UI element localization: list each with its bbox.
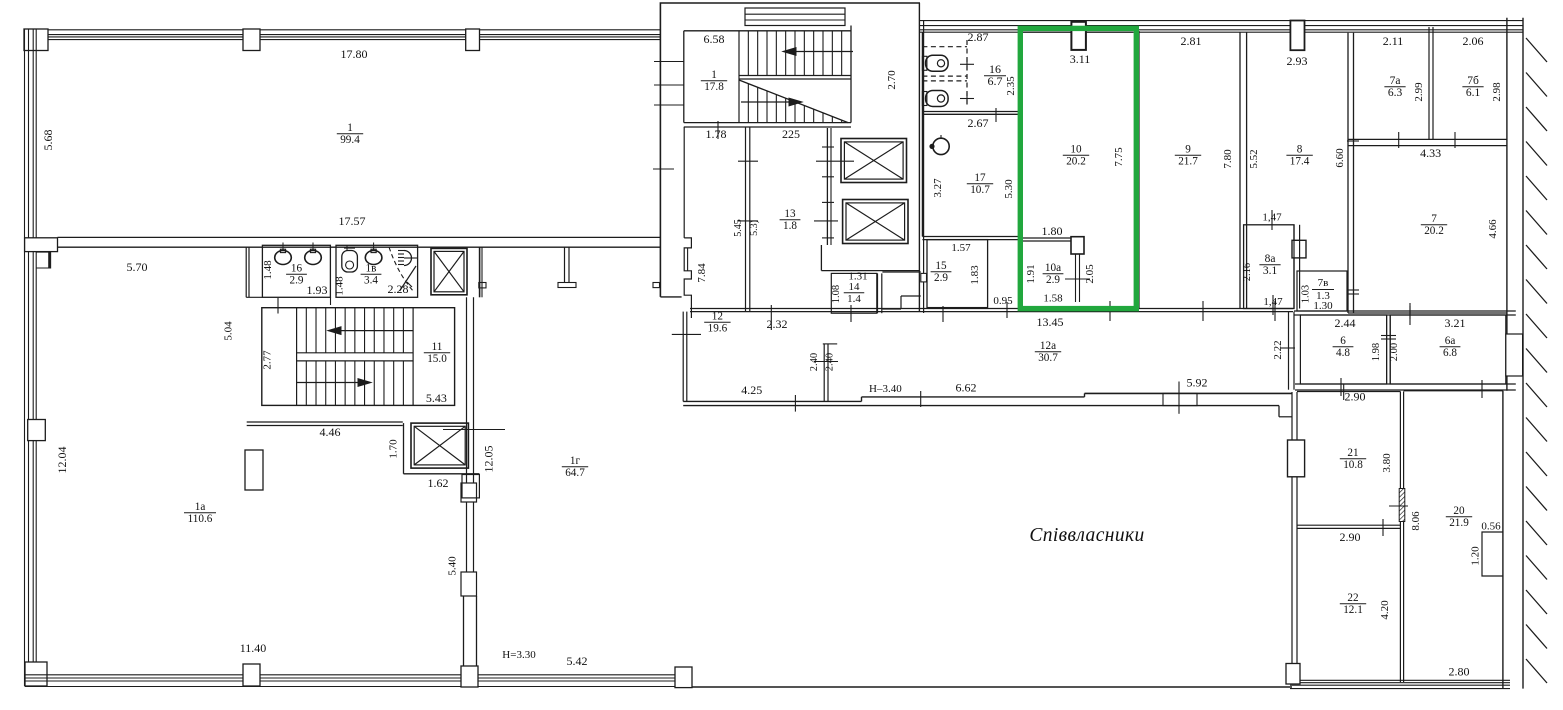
svg-text:2.9: 2.9 bbox=[290, 274, 304, 286]
svg-text:8а: 8а bbox=[1265, 253, 1276, 265]
svg-text:20.2: 20.2 bbox=[1066, 155, 1086, 167]
svg-text:2.22: 2.22 bbox=[1272, 340, 1284, 359]
svg-text:1.83: 1.83 bbox=[969, 265, 981, 285]
svg-text:11.40: 11.40 bbox=[240, 641, 267, 655]
svg-text:3.21: 3.21 bbox=[1445, 316, 1466, 330]
svg-text:7б: 7б bbox=[1467, 75, 1479, 87]
svg-text:17.4: 17.4 bbox=[1290, 155, 1310, 167]
svg-text:2.44: 2.44 bbox=[1335, 316, 1356, 330]
svg-text:1.20: 1.20 bbox=[1469, 546, 1481, 566]
svg-text:3.27: 3.27 bbox=[932, 178, 944, 198]
svg-text:6.58: 6.58 bbox=[704, 32, 725, 46]
svg-text:6.60: 6.60 bbox=[1334, 148, 1346, 168]
svg-text:5.3): 5.3) bbox=[749, 220, 760, 236]
svg-text:1: 1 bbox=[711, 69, 717, 81]
svg-text:2.80: 2.80 bbox=[1449, 665, 1470, 679]
svg-text:2.32: 2.32 bbox=[767, 317, 788, 331]
svg-text:2.90: 2.90 bbox=[1345, 390, 1366, 404]
svg-text:1в: 1в bbox=[366, 263, 377, 275]
svg-text:2.67: 2.67 bbox=[968, 116, 989, 130]
svg-text:19.6: 19.6 bbox=[708, 322, 728, 334]
svg-text:1г: 1г bbox=[570, 455, 581, 467]
svg-text:8.06: 8.06 bbox=[1410, 511, 1422, 531]
svg-text:Н=3.30: Н=3.30 bbox=[502, 649, 536, 661]
svg-text:6а: 6а bbox=[1445, 335, 1456, 347]
svg-text:5.42: 5.42 bbox=[567, 654, 588, 668]
svg-text:225: 225 bbox=[782, 127, 800, 141]
svg-text:10: 10 bbox=[1070, 144, 1082, 156]
svg-text:4.46: 4.46 bbox=[320, 425, 341, 439]
svg-text:14: 14 bbox=[849, 281, 861, 293]
svg-text:20: 20 bbox=[1453, 505, 1465, 517]
svg-text:2.9: 2.9 bbox=[934, 272, 948, 284]
svg-text:2.11: 2.11 bbox=[1383, 34, 1404, 48]
svg-text:30.7: 30.7 bbox=[1038, 352, 1058, 364]
svg-text:5.70: 5.70 bbox=[127, 260, 148, 274]
svg-text:3.11: 3.11 bbox=[1070, 52, 1091, 66]
svg-text:11: 11 bbox=[432, 341, 443, 353]
svg-text:3.4: 3.4 bbox=[364, 274, 378, 286]
svg-text:7.75: 7.75 bbox=[1113, 147, 1125, 167]
svg-text:5.40: 5.40 bbox=[447, 556, 459, 576]
svg-text:17.57: 17.57 bbox=[339, 214, 366, 228]
svg-text:2.05: 2.05 bbox=[1084, 264, 1096, 284]
svg-text:1.8: 1.8 bbox=[783, 220, 797, 232]
svg-text:6.1: 6.1 bbox=[1466, 87, 1481, 99]
svg-text:9: 9 bbox=[1185, 144, 1191, 156]
svg-text:7.80: 7.80 bbox=[1222, 149, 1234, 169]
svg-text:2.87: 2.87 bbox=[968, 30, 989, 44]
svg-text:3.1: 3.1 bbox=[1263, 265, 1278, 277]
svg-text:17.80: 17.80 bbox=[341, 47, 368, 61]
svg-text:1.58: 1.58 bbox=[1043, 293, 1063, 305]
svg-text:4.20: 4.20 bbox=[1379, 600, 1391, 620]
svg-text:1.91: 1.91 bbox=[1025, 264, 1037, 283]
svg-text:Співвласники: Співвласники bbox=[1029, 525, 1144, 546]
svg-text:4.25: 4.25 bbox=[741, 383, 762, 397]
svg-text:12: 12 bbox=[712, 311, 723, 323]
svg-text:2.16: 2.16 bbox=[1242, 263, 1253, 281]
svg-text:5.45: 5.45 bbox=[733, 219, 744, 237]
svg-text:2.77: 2.77 bbox=[262, 350, 274, 370]
svg-text:15.0: 15.0 bbox=[427, 353, 447, 365]
svg-text:0.95: 0.95 bbox=[993, 295, 1013, 307]
svg-text:2.40: 2.40 bbox=[809, 353, 820, 371]
svg-text:99.4: 99.4 bbox=[340, 134, 360, 146]
svg-text:64.7: 64.7 bbox=[565, 467, 585, 479]
svg-text:4.33: 4.33 bbox=[1420, 146, 1441, 160]
svg-text:7.84: 7.84 bbox=[696, 263, 708, 283]
svg-text:4.8: 4.8 bbox=[1336, 347, 1350, 359]
svg-text:6.3: 6.3 bbox=[1388, 87, 1403, 99]
svg-text:1.30: 1.30 bbox=[1313, 300, 1333, 312]
svg-text:22: 22 bbox=[1347, 592, 1358, 604]
svg-text:15: 15 bbox=[935, 260, 947, 272]
svg-text:1.48: 1.48 bbox=[334, 276, 346, 296]
svg-text:2.93: 2.93 bbox=[1287, 54, 1308, 68]
svg-text:2.00: 2.00 bbox=[1389, 343, 1400, 361]
svg-text:21.7: 21.7 bbox=[1178, 155, 1198, 167]
svg-text:21.9: 21.9 bbox=[1449, 517, 1469, 529]
svg-text:2.70: 2.70 bbox=[886, 70, 898, 90]
svg-text:12.04: 12.04 bbox=[55, 447, 69, 474]
svg-text:2.28: 2.28 bbox=[388, 282, 409, 296]
svg-text:2.99: 2.99 bbox=[1413, 82, 1425, 102]
svg-text:20.2: 20.2 bbox=[1424, 225, 1444, 237]
svg-text:2.9: 2.9 bbox=[1046, 274, 1060, 286]
svg-text:7а: 7а bbox=[1390, 75, 1401, 87]
svg-text:5.92: 5.92 bbox=[1187, 376, 1208, 390]
svg-text:13: 13 bbox=[784, 208, 796, 220]
svg-text:16: 16 bbox=[291, 263, 303, 275]
svg-text:12а: 12а bbox=[1040, 340, 1056, 352]
svg-text:1.48: 1.48 bbox=[262, 260, 274, 280]
svg-text:1.70: 1.70 bbox=[387, 439, 399, 459]
svg-text:2.06: 2.06 bbox=[1463, 34, 1484, 48]
svg-text:1: 1 bbox=[347, 122, 353, 134]
svg-text:4.66: 4.66 bbox=[1487, 219, 1499, 239]
svg-text:1.4: 1.4 bbox=[847, 293, 861, 305]
svg-text:2.40: 2.40 bbox=[825, 353, 836, 371]
svg-text:3.80: 3.80 bbox=[1381, 453, 1393, 473]
svg-text:17: 17 bbox=[974, 172, 986, 184]
svg-text:12.1: 12.1 bbox=[1343, 604, 1363, 616]
svg-text:1.03: 1.03 bbox=[1301, 285, 1312, 303]
svg-text:5.52: 5.52 bbox=[1248, 149, 1260, 168]
svg-text:21: 21 bbox=[1347, 447, 1358, 459]
svg-text:12.05: 12.05 bbox=[482, 446, 496, 473]
svg-text:8: 8 bbox=[1297, 144, 1303, 156]
svg-text:10.7: 10.7 bbox=[970, 184, 990, 196]
svg-text:7в: 7в bbox=[1318, 277, 1329, 289]
svg-text:110.6: 110.6 bbox=[188, 513, 213, 525]
svg-text:2.81: 2.81 bbox=[1181, 34, 1202, 48]
svg-text:6.7: 6.7 bbox=[988, 74, 1003, 88]
svg-text:1а: 1а bbox=[195, 501, 206, 513]
svg-text:2.98: 2.98 bbox=[1491, 82, 1503, 102]
svg-text:0.56: 0.56 bbox=[1481, 521, 1501, 533]
svg-text:1.98: 1.98 bbox=[1371, 343, 1382, 361]
svg-text:6.8: 6.8 bbox=[1443, 347, 1457, 359]
svg-text:10а: 10а bbox=[1045, 262, 1061, 274]
svg-text:2.90: 2.90 bbox=[1340, 530, 1361, 544]
svg-text:13.45: 13.45 bbox=[1037, 315, 1064, 329]
svg-text:17.8: 17.8 bbox=[704, 81, 724, 93]
svg-text:1.80: 1.80 bbox=[1042, 224, 1063, 238]
svg-text:1.08: 1.08 bbox=[831, 285, 842, 303]
svg-text:5.30: 5.30 bbox=[1003, 179, 1015, 199]
svg-text:1.57: 1.57 bbox=[951, 242, 971, 254]
svg-text:7: 7 bbox=[1431, 213, 1437, 225]
svg-text:1.93: 1.93 bbox=[307, 283, 328, 297]
svg-text:5.68: 5.68 bbox=[41, 130, 55, 151]
svg-text:10.8: 10.8 bbox=[1343, 459, 1363, 471]
svg-text:5.04: 5.04 bbox=[223, 321, 235, 341]
svg-text:1.78: 1.78 bbox=[706, 127, 727, 141]
svg-text:6.62: 6.62 bbox=[956, 381, 977, 395]
svg-text:1.62: 1.62 bbox=[428, 476, 449, 490]
svg-text:5.43: 5.43 bbox=[426, 391, 447, 405]
svg-text:2.35: 2.35 bbox=[1005, 76, 1017, 96]
svg-text:6: 6 bbox=[1340, 335, 1346, 347]
svg-text:Н–3.40: Н–3.40 bbox=[869, 383, 902, 395]
